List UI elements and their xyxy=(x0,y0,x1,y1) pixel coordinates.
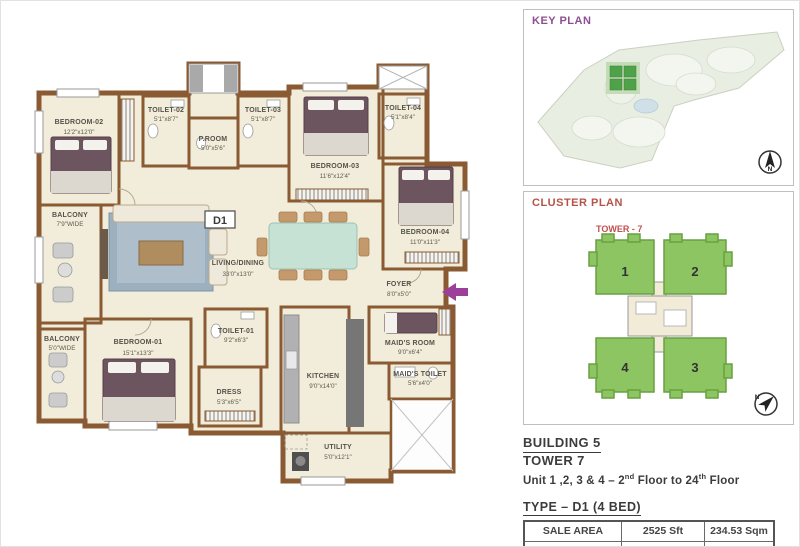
room-dims-maids-room: 9'0"x6'4" xyxy=(398,349,422,356)
units-line-part: Floor xyxy=(706,475,739,487)
room-dims-toilet-03: 5'1"x8'7" xyxy=(251,116,275,123)
room-label-bedroom-04: BEDROOM-04 xyxy=(401,229,450,236)
room-dims-foyer: 8'0"x5'0" xyxy=(387,291,411,298)
duct-top-right xyxy=(379,66,427,89)
room-dims-utility: 5'0"x12'1" xyxy=(324,454,352,461)
room-label-toilet-02: TOILET-02 xyxy=(148,107,184,114)
room-dims-dress: 5'3"x6'5" xyxy=(217,399,241,406)
floor-plan: D1 BEDROOM-02 12'2"x12'0" TOILET-02 5'1"… xyxy=(1,1,521,547)
room-label-bedroom-03: BEDROOM-03 xyxy=(311,163,360,170)
room-label-maids-toilet: MAID'S TOILET xyxy=(393,371,447,378)
room-label-toilet-04: TOILET-04 xyxy=(385,105,421,112)
cluster-unit-2-number: 2 xyxy=(691,264,698,279)
type-title: TYPE – D1 (4 BED) xyxy=(523,500,641,516)
room-dims-kitchen: 9'0"x14'0" xyxy=(309,383,337,390)
living-rug xyxy=(109,213,213,291)
room-label-bedroom-01: BEDROOM-01 xyxy=(114,339,163,346)
room-dims-bedroom-02: 12'2"x12'0" xyxy=(63,129,94,136)
area-sft-cell: 2525 Sft xyxy=(622,521,705,542)
cluster-unit-1-number: 1 xyxy=(621,264,628,279)
building-title: BUILDING 5 xyxy=(523,435,601,453)
bed-maids-room xyxy=(385,313,437,333)
units-line-part: Floor to 24 xyxy=(634,475,698,487)
brochure-page: D1 BEDROOM-02 12'2"x12'0" TOILET-02 5'1"… xyxy=(0,0,800,547)
cluster-plan-map: TOWER - 7 xyxy=(524,192,793,424)
room-dims-balcony-1: 7'9"WIDE xyxy=(57,221,84,228)
room-dims-maids-toilet: 5'6"x4'0" xyxy=(408,380,432,387)
room-label-toilet-03: TOILET-03 xyxy=(245,107,281,114)
units-line-sup: nd xyxy=(625,472,635,481)
room-label-bedroom-02: BEDROOM-02 xyxy=(55,119,104,126)
key-plan-panel: KEY PLAN N xyxy=(523,9,794,186)
room-label-dress: DRESS xyxy=(216,389,241,396)
key-plan-map: N xyxy=(524,10,793,185)
room-label-utility: UTILITY xyxy=(324,444,352,451)
cluster-unit-4-number: 4 xyxy=(621,360,629,375)
cluster-unit-3-number: 3 xyxy=(691,360,698,375)
room-label-foyer: FOYER xyxy=(386,281,411,288)
area-label-cell: CARPET AREA xyxy=(524,541,622,547)
north-east-compass-icon: N xyxy=(755,393,777,415)
room-label-balcony-1: BALCONY xyxy=(52,212,88,219)
area-sqm-cell: 234.53 Sqm xyxy=(705,521,775,542)
area-sqm-cell: 161.67 Sqm xyxy=(705,541,775,547)
room-label-balcony-2: BALCONY xyxy=(44,336,80,343)
table-row: CARPET AREA 1740 Sft 161.67 Sqm xyxy=(524,541,774,547)
room-dims-toilet-02: 5'1"x8'7" xyxy=(154,116,178,123)
cluster-plan-panel: CLUSTER PLAN TOWER - 7 xyxy=(523,191,794,425)
room-dims-bedroom-04: 11'0"x11'3" xyxy=(410,239,440,246)
room-label-kitchen: KITCHEN xyxy=(307,373,340,380)
bed-bedroom-03 xyxy=(304,97,368,155)
north-compass-icon: N xyxy=(759,151,781,173)
bed-bedroom-04 xyxy=(399,167,453,225)
room-label-toilet-01: TOILET-01 xyxy=(218,328,254,335)
room-dims-bedroom-01: 15'1"x13'3" xyxy=(122,350,153,357)
room-label-living-dining: LIVING/DINING xyxy=(212,260,265,267)
units-line-part: Unit 1 ,2, 3 & 4 – 2 xyxy=(523,475,625,487)
area-label-cell: SALE AREA xyxy=(524,521,622,542)
cluster-plan-north-label: N xyxy=(755,395,759,401)
bed-bedroom-02 xyxy=(51,137,111,193)
area-sft-cell: 1740 Sft xyxy=(622,541,705,547)
bed-bedroom-01 xyxy=(103,359,175,421)
room-dims-living-dining: 33'0"x13'0" xyxy=(222,271,253,278)
room-label-p-room: P.ROOM xyxy=(199,136,228,143)
service-lift xyxy=(391,399,453,471)
highlighted-tower xyxy=(606,62,640,94)
tower-title: TOWER 7 xyxy=(523,453,795,469)
room-label-maids-room: MAID'S ROOM xyxy=(385,340,435,347)
room-dims-toilet-01: 9'2"x6'3" xyxy=(224,337,248,344)
building-info: BUILDING 5 TOWER 7 Unit 1 ,2, 3 & 4 – 2n… xyxy=(523,435,795,547)
room-dims-bedroom-03: 11'6"x12'4" xyxy=(320,173,351,180)
top-shaft xyxy=(189,64,238,93)
unit-type-tag: D1 xyxy=(205,211,235,228)
cluster-tower-label: TOWER - 7 xyxy=(596,224,642,234)
table-row: SALE AREA 2525 Sft 234.53 Sqm xyxy=(524,521,774,542)
key-plan-north-label: N xyxy=(768,166,773,173)
unit-type-label: D1 xyxy=(213,215,227,227)
cluster-core-lift xyxy=(636,302,656,314)
room-dims-toilet-04: 5'1"x8'4" xyxy=(391,114,415,121)
units-floors-line: Unit 1 ,2, 3 & 4 – 2nd Floor to 24th Flo… xyxy=(523,469,795,489)
room-dims-p-room: 5'0"x5'6" xyxy=(201,145,225,152)
area-table: SALE AREA 2525 Sft 234.53 Sqm CARPET ARE… xyxy=(523,520,775,547)
room-dims-balcony-2: 5'0"WIDE xyxy=(49,345,76,352)
cluster-core-stair xyxy=(664,310,686,326)
